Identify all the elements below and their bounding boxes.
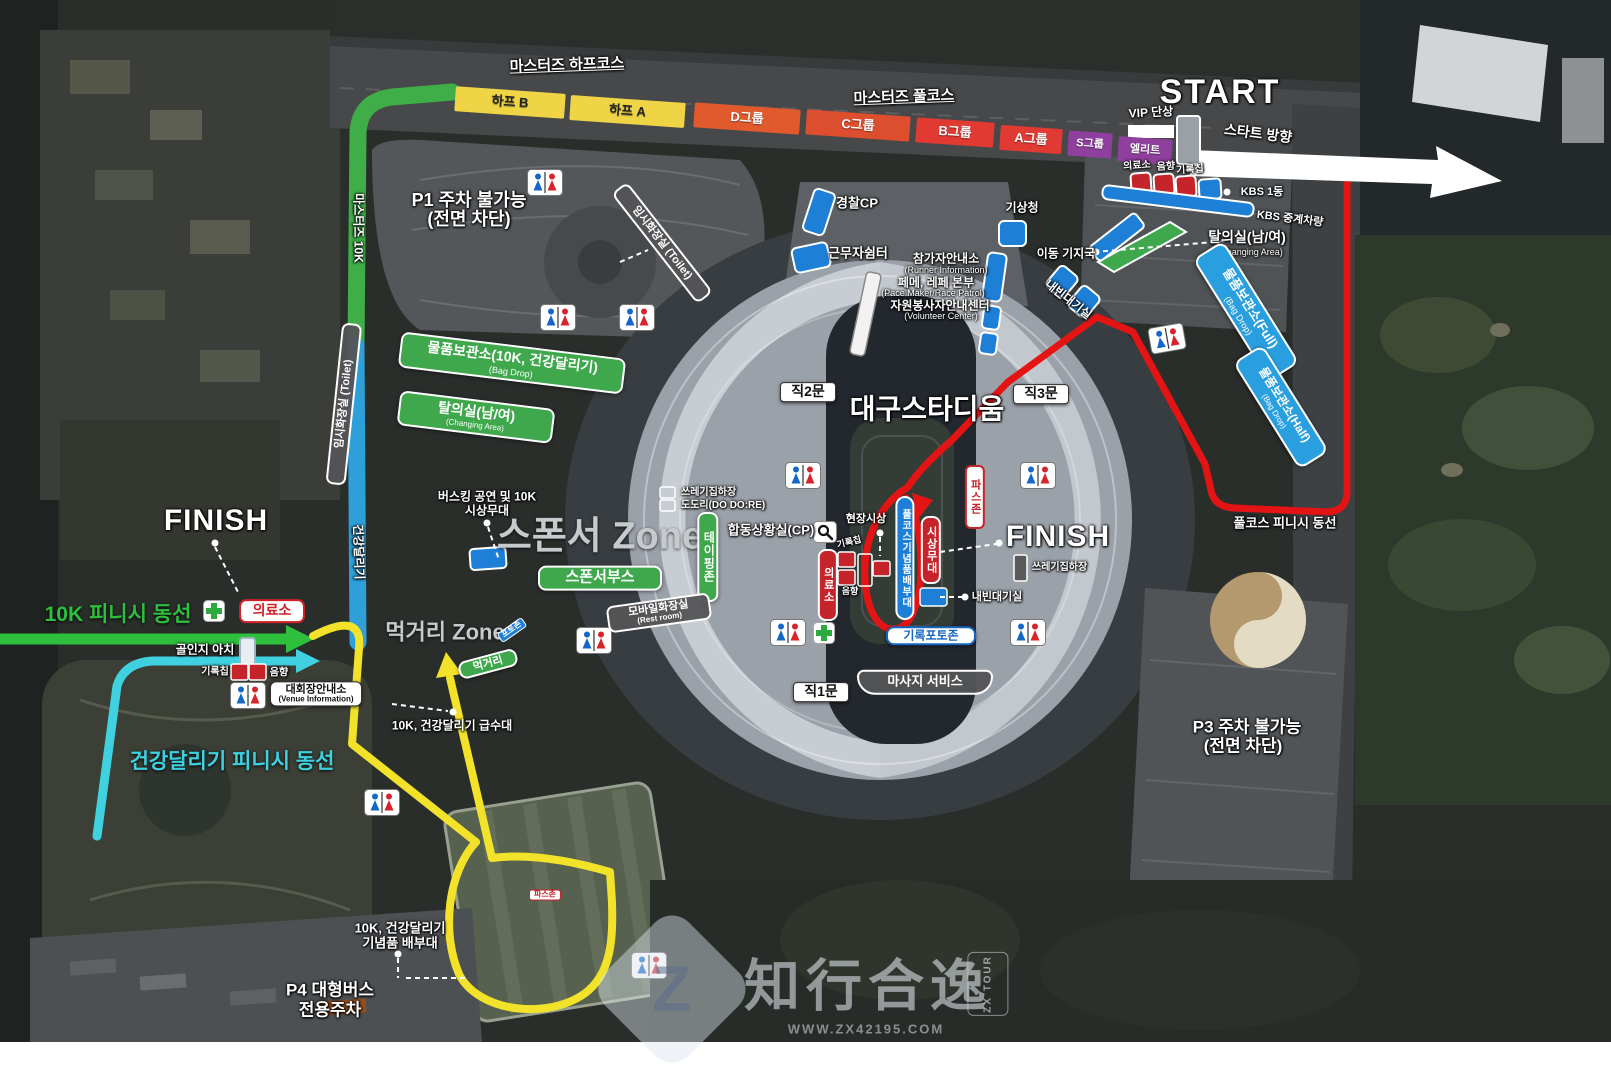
finish-10k-route-label: 10K 피니시 동선: [45, 603, 192, 627]
venue-map: 마스터즈 하프코스 마스터즈 풀코스 하프 B 하프 A D그룹 C그룹 B그룹…: [0, 0, 1611, 1065]
restroom-icon: [1021, 463, 1056, 489]
start-medical-label: 의료소: [1123, 159, 1151, 172]
pas-zone-stadium-box: 파스존: [965, 465, 985, 529]
p4-parking-sub: 전용주차: [299, 1000, 362, 1019]
taping-zone-box: 테이핑존: [697, 512, 718, 602]
bar-group-b: B그룹: [915, 117, 995, 147]
p3-parking-label: P3 주차 불가능: [1193, 717, 1301, 736]
runner-info-label: 참가자안내소: [913, 252, 979, 265]
bar-group-a: A그룹: [999, 125, 1063, 154]
restroom-icon: [365, 790, 400, 816]
p1-no-parking-label: P1 주차 불가능: [412, 190, 527, 210]
joint-cp-label: 합동상황실(CP): [728, 524, 815, 539]
masters-10k-band-label: 마스터즈 10K: [351, 193, 364, 263]
masters-full-course-title: 마스터즈 풀코스: [853, 88, 954, 108]
finish-left-title: FINISH: [164, 504, 268, 538]
finish-center-title: FINISH: [1006, 520, 1110, 554]
weather-station-label: 기상청: [1005, 201, 1038, 214]
p4-parking-label: P4 대형버스: [286, 980, 374, 999]
restroom-icon: [528, 170, 563, 196]
venue-info-box: 대회장안내소 (Venue Information): [270, 681, 362, 706]
souvenir-10k-sub: 기념품 배부대: [362, 937, 437, 952]
restroom-icon: [577, 628, 612, 654]
award-stage-box: 시상무대: [921, 516, 941, 584]
busking-stage-label: 버스킹 공연 및 10K: [438, 490, 536, 503]
medical-cross-icon: [204, 601, 225, 622]
restroom-icon: [620, 305, 655, 331]
massage-service-box: 마사지 서비스: [857, 670, 993, 695]
start-title: START: [1160, 73, 1281, 111]
police-cp-label: 경찰CP: [836, 197, 878, 212]
start-chip-label: 기록칩: [1176, 163, 1204, 176]
restroom-icon: [786, 463, 821, 489]
chip-left-label: 기록칩: [201, 666, 229, 677]
full-souvenir-box: 풀코스기념품배부대: [895, 496, 914, 620]
finish-health-route-label: 건강달리기 피니시 동선: [130, 750, 335, 774]
gate1-box: 직1문: [793, 682, 849, 702]
sound-stadium-label: 음향: [842, 586, 859, 596]
p3-parking-sub: (전면 차단): [1204, 736, 1283, 755]
magnifier-icon: [814, 522, 837, 543]
venue-info-sub: (Venue Information): [273, 696, 359, 705]
gate2-box: 직2문: [780, 382, 836, 402]
watermark-side: ZX TOUR: [967, 952, 1008, 1016]
volunteer-center-sub: (Volunteer Center): [904, 311, 978, 321]
start-sound-label: 음향: [1156, 161, 1175, 173]
bar-group-s: S그룹: [1067, 130, 1113, 158]
dodori-label: 도도리(DO DO:RE): [681, 500, 765, 511]
restroom-icon: [231, 683, 266, 709]
health-run-band-label: 건강달리기: [350, 524, 365, 580]
pacer-hq-sub: (Pace Maker/Race Patrol): [881, 288, 985, 298]
souvenir-10k-label: 10K, 건강달리기: [355, 922, 446, 937]
restroom-icon: [771, 620, 806, 646]
medical-left-box: 의료소: [239, 599, 305, 623]
trash-collection-right-label: 쓰레기집하장: [1032, 562, 1087, 573]
full-finish-route-label: 풀코스 피니시 동선: [1234, 517, 1337, 532]
medical-stadium-box: 의료소: [818, 549, 838, 621]
onsite-award-label: 현장시상: [846, 513, 886, 525]
pas-zone-field-tag: 파스존: [529, 890, 561, 901]
vip-lounge-stadium-label: 내빈대기실: [972, 591, 1023, 603]
stadium-title: 대구스타디움: [850, 393, 1005, 424]
food-zone-title: 먹거리 Zone: [385, 621, 504, 646]
water-station-label: 10K, 건강달리기 급수대: [392, 719, 512, 732]
restroom-icon: [541, 305, 576, 331]
sponsor-zone-title: 스폰서 Zone: [497, 516, 703, 559]
watermark-logo-letter: Z: [652, 952, 691, 1026]
restroom-icon: [1148, 323, 1187, 355]
sound-left-label: 음향: [270, 667, 288, 678]
p1-no-parking-sub: (전면 차단): [427, 209, 510, 229]
watermark-url: WWW.ZX42195.COM: [788, 1023, 944, 1038]
record-photo-zone-box: 기록포토존: [886, 626, 976, 645]
sponsor-booth-box: 스폰서부스: [538, 566, 662, 591]
mobile-base-station-label: 이동 기지국: [1037, 247, 1096, 260]
finish-arch-label: 골인지 아치: [176, 643, 235, 656]
medical-cross-icon: [814, 623, 835, 644]
trash-collection-label: 쓰레기집하장: [681, 487, 736, 498]
kbs-1-label: KBS 1동: [1241, 186, 1284, 198]
restroom-icon: [1011, 620, 1046, 646]
watermark-cn: 知行合逸: [744, 956, 992, 1019]
route-health-blue: [356, 346, 358, 642]
runner-info-sub: (Runner Information): [904, 265, 987, 275]
staff-shelter-label: 근무자쉼터: [828, 247, 888, 262]
gate3-box: 직3문: [1013, 384, 1069, 404]
